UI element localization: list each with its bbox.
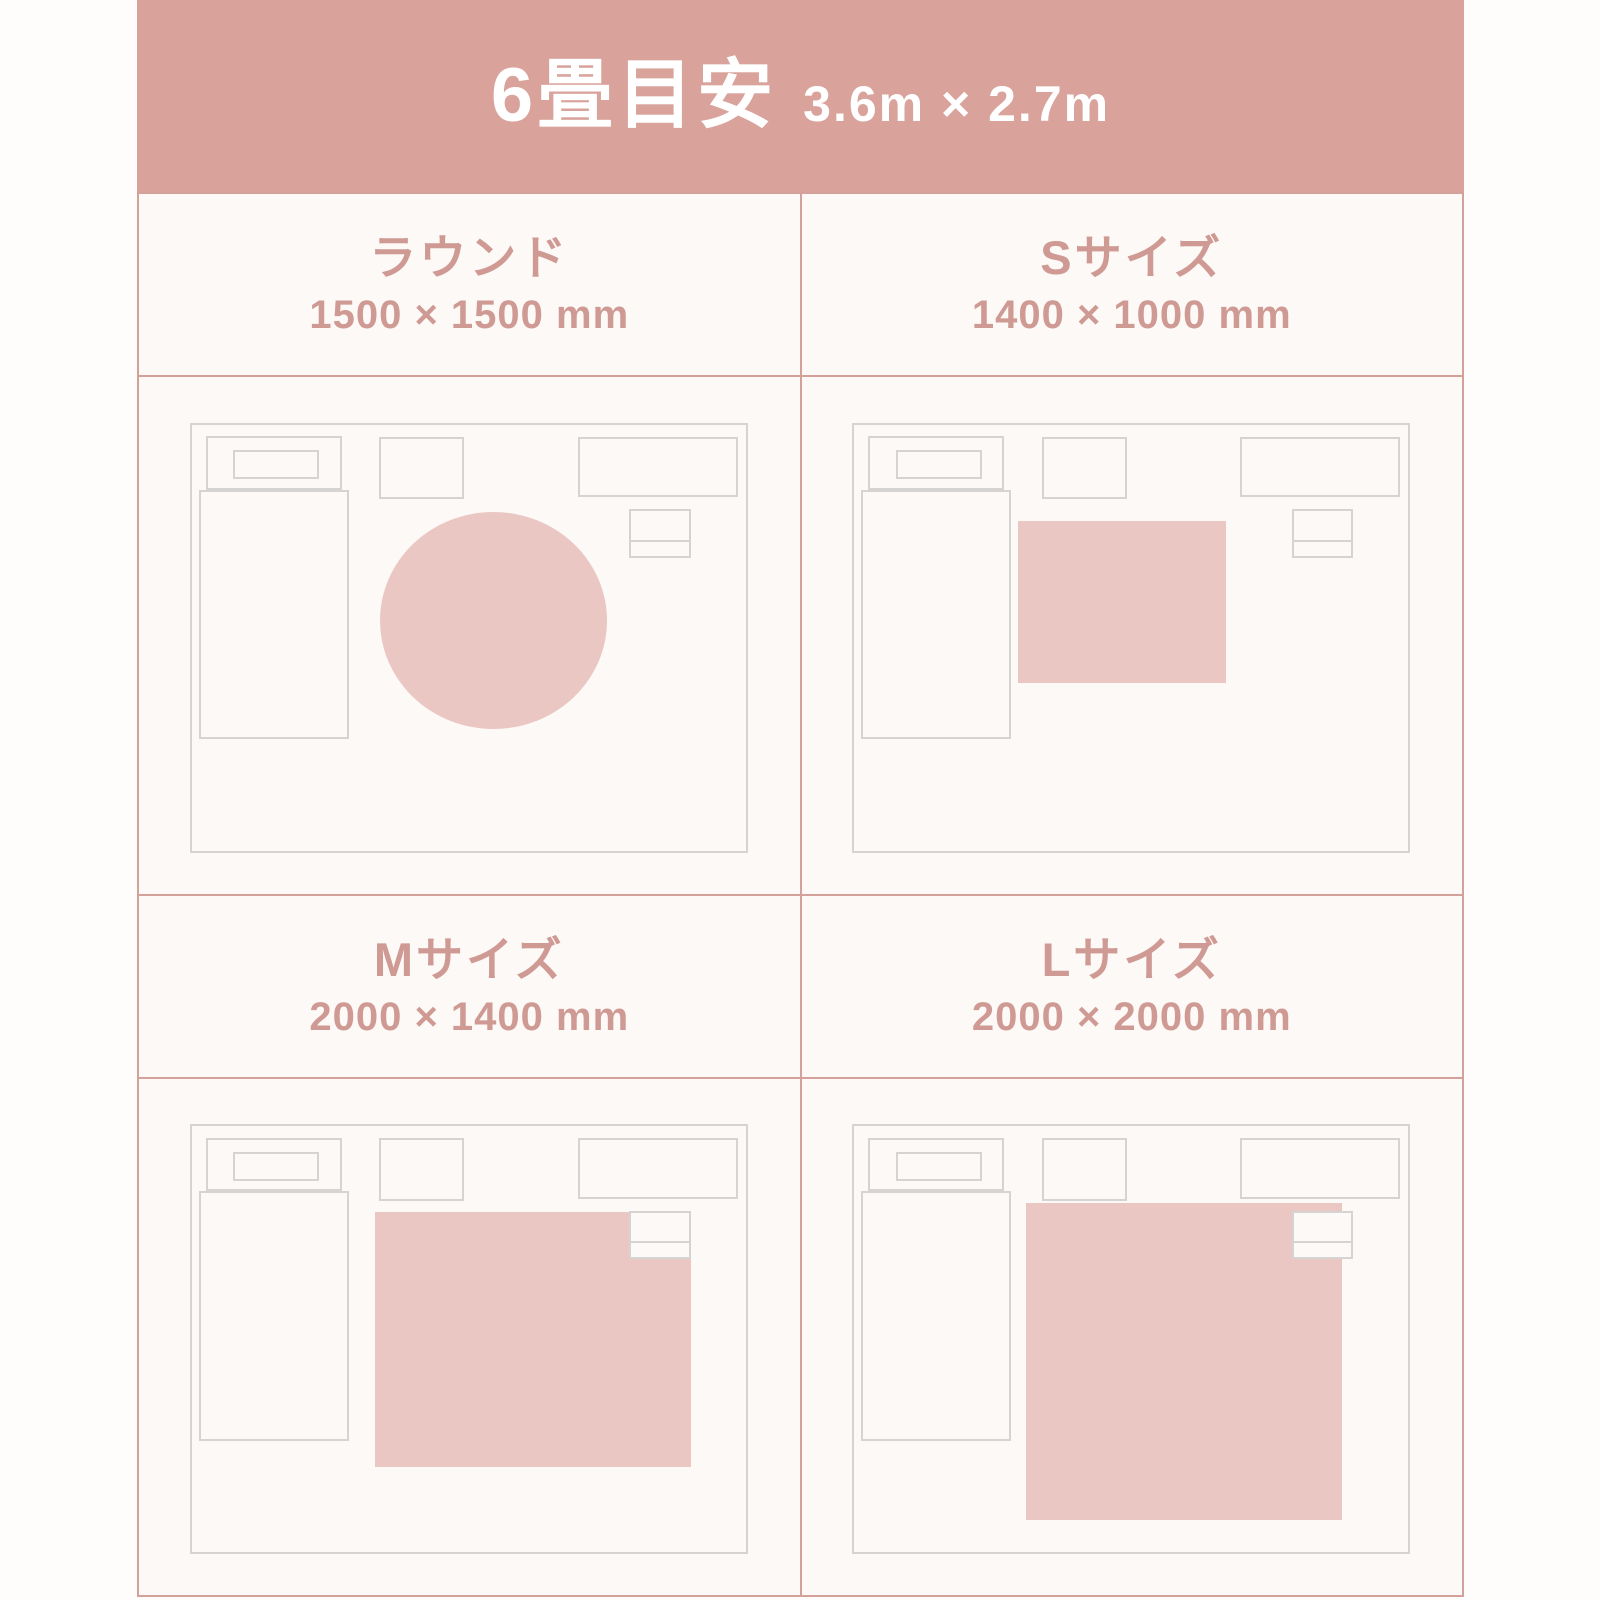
desk — [1240, 437, 1400, 497]
card-header: Mサイズ 2000 × 1400 mm — [139, 896, 800, 1079]
desk — [578, 1138, 738, 1198]
size-guide-panel: 6畳目安 3.6m × 2.7m ラウンド 1500 × 1500 mm — [137, 0, 1464, 1597]
bed-pillow — [896, 1152, 982, 1181]
room-outline — [852, 423, 1410, 853]
card-dimensions: 1500 × 1500 mm — [309, 295, 629, 335]
card-header: Sサイズ 1400 × 1000 mm — [802, 194, 1463, 377]
room-outline — [852, 1124, 1410, 1554]
rug-size-guide: { "header": { "title": "6畳目安", "subtitle… — [0, 0, 1600, 1600]
desk-chair — [1292, 509, 1354, 558]
size-card-grid: ラウンド 1500 × 1500 mm S — [137, 192, 1464, 1597]
bed-pillow — [896, 450, 982, 479]
room-diagram — [139, 1079, 800, 1596]
card-title: Sサイズ — [1040, 234, 1223, 281]
dresser — [379, 437, 464, 500]
size-card-round: ラウンド 1500 × 1500 mm — [139, 194, 800, 894]
chair-divider — [631, 1241, 689, 1243]
bed — [861, 1191, 1011, 1440]
banner-title: 6畳目安 — [491, 0, 777, 192]
rug-round — [380, 512, 607, 729]
card-dimensions: 1400 × 1000 mm — [972, 295, 1292, 335]
dresser — [1042, 437, 1127, 500]
room-outline — [190, 423, 748, 853]
room-diagram — [802, 1079, 1463, 1596]
rug-s — [1018, 521, 1226, 683]
dresser — [379, 1138, 464, 1201]
size-card-l: Lサイズ 2000 × 2000 mm — [802, 896, 1463, 1596]
bed — [861, 490, 1011, 739]
desk — [1240, 1138, 1400, 1198]
bed-pillow — [233, 1152, 319, 1181]
card-title: Lサイズ — [1042, 936, 1222, 983]
card-title: Mサイズ — [374, 936, 565, 983]
room-diagram — [802, 377, 1463, 894]
desk-chair — [629, 509, 691, 558]
chair-divider — [1294, 540, 1352, 542]
dresser — [1042, 1138, 1127, 1201]
desk-chair — [1292, 1211, 1354, 1260]
bed-pillow — [233, 450, 319, 479]
room-size-banner: 6畳目安 3.6m × 2.7m — [137, 0, 1464, 192]
desk-chair — [629, 1211, 691, 1260]
chair-divider — [631, 540, 689, 542]
chair-divider — [1294, 1241, 1352, 1243]
room-diagram — [139, 377, 800, 894]
size-card-m: Mサイズ 2000 × 1400 mm — [139, 896, 800, 1596]
card-dimensions: 2000 × 1400 mm — [309, 997, 629, 1037]
card-header: Lサイズ 2000 × 2000 mm — [802, 896, 1463, 1079]
card-title: ラウンド — [369, 234, 569, 281]
card-dimensions: 2000 × 2000 mm — [972, 997, 1292, 1037]
desk — [578, 437, 738, 497]
bed — [199, 1191, 349, 1440]
bed — [199, 490, 349, 739]
size-card-s: Sサイズ 1400 × 1000 mm — [802, 194, 1463, 894]
room-outline — [190, 1124, 748, 1554]
banner-room-dimensions: 3.6m × 2.7m — [803, 8, 1110, 200]
card-header: ラウンド 1500 × 1500 mm — [139, 194, 800, 377]
